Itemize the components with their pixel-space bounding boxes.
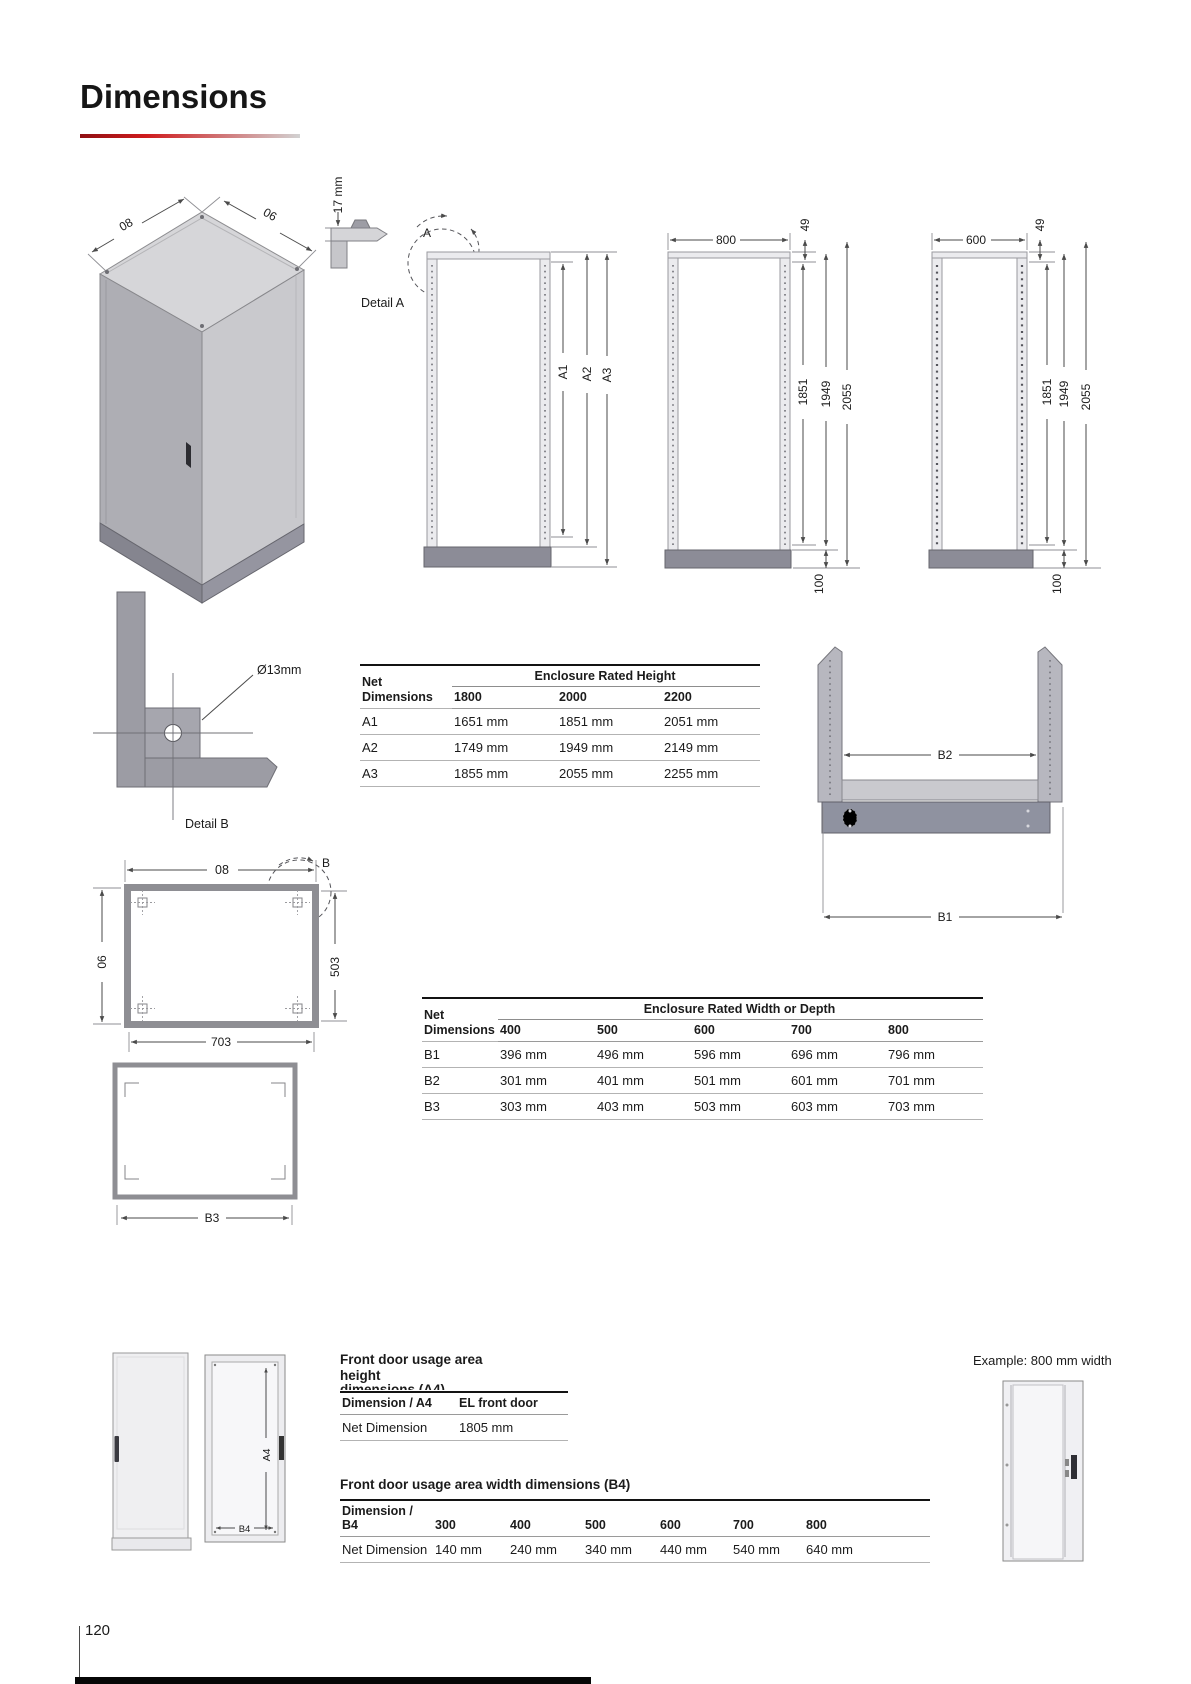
footer-bar [75,1677,591,1684]
table-row: A3 1855 mm 2055 mm 2255 mm [360,761,760,787]
col-header-400: 400 [498,1020,595,1042]
offset-49-label: 49 [1035,219,1047,232]
group-header: Enclosure Rated Width or Depth [498,998,983,1020]
table-row: A1 1651 mm 1851 mm 2051 mm [360,709,760,735]
detail-b-drawing: Ø13mm Detail B [85,585,320,850]
dim-value: 596 mm [692,1042,789,1068]
page-number: 120 [85,1622,110,1639]
dim-a4-label: A4 [261,1448,273,1461]
table-row: B3 303 mm 403 mm 503 mm 603 mm 703 mm [422,1094,983,1120]
dim-b4-label: B4 [239,1524,251,1535]
group-header: Enclosure Rated Height [452,665,760,687]
dim-value: 303 mm [498,1094,595,1120]
corner-header: Net Dimensions [360,665,452,709]
dim-a3-label: A3 [600,367,614,382]
dim-value: 401 mm [595,1068,692,1094]
dim-100-label: 100 [1050,574,1064,594]
detail-a-caption: Detail A [361,296,405,310]
col-header: 500 [583,1500,658,1537]
dim-2055-label: 2055 [840,383,854,410]
row-label: A1 [360,709,452,735]
catalog-page: Dimensions 08 06 [0,0,1191,1684]
dim-value: 2055 mm [557,761,662,787]
table-row: A2 1749 mm 1949 mm 2149 mm [360,735,760,761]
example-caption: Example: 800 mm width [973,1353,1112,1368]
hole-leader-line [202,675,253,720]
dim-value: 140 mm [433,1537,508,1563]
corner-bracket-detail [117,592,277,787]
door-height-heading-clipped: dimensions (A4) [340,1383,540,1390]
door-base [112,1538,191,1550]
row-label: B3 [422,1094,498,1120]
door-height-table: Dimension / A4 EL front door Net Dimensi… [340,1391,568,1441]
dim-value: 601 mm [789,1068,886,1094]
door-frame-a4-b4-drawing: A4 B4 [200,1350,295,1550]
corner-bracket [331,220,387,268]
row-label: B2 [422,1068,498,1094]
dim-value: 301 mm [498,1068,595,1094]
col-header-800: 800 [886,1020,983,1042]
isometric-enclosure-drawing: 08 06 [80,190,330,615]
dim-value: 501 mm [692,1068,789,1094]
front-view-800-drawing: 800 49 1851 1949 2055 100 [620,195,870,607]
plan-top-dim-label: 08 [215,863,229,877]
col-header-1800: 1800 [452,687,557,709]
dim-value: 701 mm [886,1068,983,1094]
door-height-heading: Front door usage area height [340,1352,550,1383]
dim-value: 1805 mm [457,1415,568,1441]
row-label: B1 [422,1042,498,1068]
dim-b1-label: B1 [938,910,953,924]
door-panel [1013,1385,1063,1559]
offset-49-label: 49 [800,219,812,232]
col-header-700: 700 [789,1020,886,1042]
iso-width-label: 08 [117,215,136,234]
dim-value: 2051 mm [662,709,760,735]
dim-value: 603 mm [789,1094,886,1120]
col-header: 700 [731,1500,804,1537]
table-row: Net Dimensions Enclosure Rated Height [360,665,760,687]
table-row: B1 396 mm 496 mm 596 mm 696 mm 796 mm [422,1042,983,1068]
detail-b-ref-label: B [322,856,330,870]
door-width-table: Dimension / B4 300 400 500 600 700 800 N… [340,1499,930,1563]
hole-diameter-label: Ø13mm [257,663,301,677]
dim-value: 1855 mm [452,761,557,787]
door-handle [1071,1455,1077,1479]
front-view-600-drawing: 600 49 1851 1949 2055 100 [905,195,1191,607]
frame-profile-drawing: 17 mm Detail A A A1 A2 [325,165,625,595]
dim-value: 496 mm [595,1042,692,1068]
detail-b-caption: Detail B [185,817,229,831]
dim-value: 2149 mm [662,735,760,761]
dim-value: 1949 mm [557,735,662,761]
door-handle [115,1436,120,1462]
iso-cabinet-body [100,212,304,603]
table-row: Dimension / A4 EL front door [340,1392,568,1415]
door-panel [113,1353,188,1538]
row-label: A3 [360,761,452,787]
dim-b3-label: B3 [205,1211,220,1225]
detail-b-arrow [279,858,313,865]
corner-header: Net Dimensions [422,998,498,1042]
dim-a2-label: A2 [580,366,594,381]
col-header: EL front door [457,1392,568,1415]
table-row: B2 301 mm 401 mm 501 mm 601 mm 701 mm [422,1068,983,1094]
detail-a-arrow [417,216,447,227]
plan-view-b3-drawing: B3 [95,1055,345,1247]
table-row: 400 500 600 700 800 [422,1020,983,1042]
width-600-label: 600 [966,233,986,247]
dim-value: 1851 mm [557,709,662,735]
dim-value: 396 mm [498,1042,595,1068]
frame-body [929,252,1033,568]
dim-a1-label: A1 [556,364,570,379]
table-row: Net Dimension 1805 mm [340,1415,568,1441]
dim-2055-label: 2055 [1079,383,1093,410]
dim-value: 540 mm [731,1537,804,1563]
dim-1851-label: 1851 [1040,378,1054,405]
frame-body [424,252,551,567]
door-handle [186,442,191,468]
row-label: A2 [360,735,452,761]
dim-1851-label: 1851 [796,378,810,405]
offset-17mm-label: 17 mm [331,177,345,214]
title-underline [80,134,300,138]
lock [1065,1459,1069,1466]
dim-value: 703 mm [886,1094,983,1120]
channel-body [818,647,1062,833]
frame-inner [212,1362,278,1535]
dim-value: 340 mm [583,1537,658,1563]
dim-value: 403 mm [595,1094,692,1120]
dim-1949-label: 1949 [1057,380,1071,407]
example-door-drawing [995,1375,1095,1570]
dim-value: 503 mm [692,1094,789,1120]
col-header-2200: 2200 [662,687,760,709]
plan-frame [128,888,316,1025]
channel-section-drawing: B2 B1 [810,595,1082,940]
dim-value: 240 mm [508,1537,583,1563]
dim-value: 2255 mm [662,761,760,787]
front-door-drawing [108,1348,198,1558]
plan-left-dim-label: 06 [95,955,109,969]
door-width-heading: Front door usage area width dimensions (… [340,1477,630,1493]
col-header: 600 [658,1500,731,1537]
lock [1065,1470,1069,1477]
dim-b2-label: B2 [938,748,953,762]
col-header-2000: 2000 [557,687,662,709]
page-title: Dimensions [80,78,267,116]
dim-100-label: 100 [812,574,826,594]
row-label: Net Dimension [340,1537,433,1563]
plan-bottom-dim-label: 703 [211,1035,231,1049]
dim-value: 1651 mm [452,709,557,735]
dim-value: 796 mm [886,1042,983,1068]
col-header: 800 [804,1500,930,1537]
dim-value: 696 mm [789,1042,886,1068]
col-header: 400 [508,1500,583,1537]
col-header: Dimension / B4 [340,1500,433,1537]
dim-value: 640 mm [804,1537,930,1563]
plan-frame [115,1065,295,1197]
col-header-600: 600 [692,1020,789,1042]
row-label: Net Dimension [340,1415,457,1441]
table-row: Net Dimension 140 mm 240 mm 340 mm 440 m… [340,1537,930,1563]
col-header: 300 [433,1500,508,1537]
plan-right-dim-label: 503 [328,957,342,977]
dim-value: 1749 mm [452,735,557,761]
door-handle [279,1436,284,1460]
frame-body [665,252,791,568]
table-row: Dimension / B4 300 400 500 600 700 800 [340,1500,930,1537]
dim-1949-label: 1949 [819,380,833,407]
iso-depth-label: 06 [261,205,280,224]
table-row: Net Dimensions Enclosure Rated Width or … [422,998,983,1020]
width-table: Net Dimensions Enclosure Rated Width or … [422,997,983,1120]
height-table: Net Dimensions Enclosure Rated Height 18… [360,664,760,787]
footer-rule [79,1626,80,1684]
plan-view-drawing: 08 B 06 503 703 [85,840,357,1072]
width-800-label: 800 [716,233,736,247]
dim-value: 440 mm [658,1537,731,1563]
col-header: Dimension / A4 [340,1392,457,1415]
col-header-500: 500 [595,1020,692,1042]
